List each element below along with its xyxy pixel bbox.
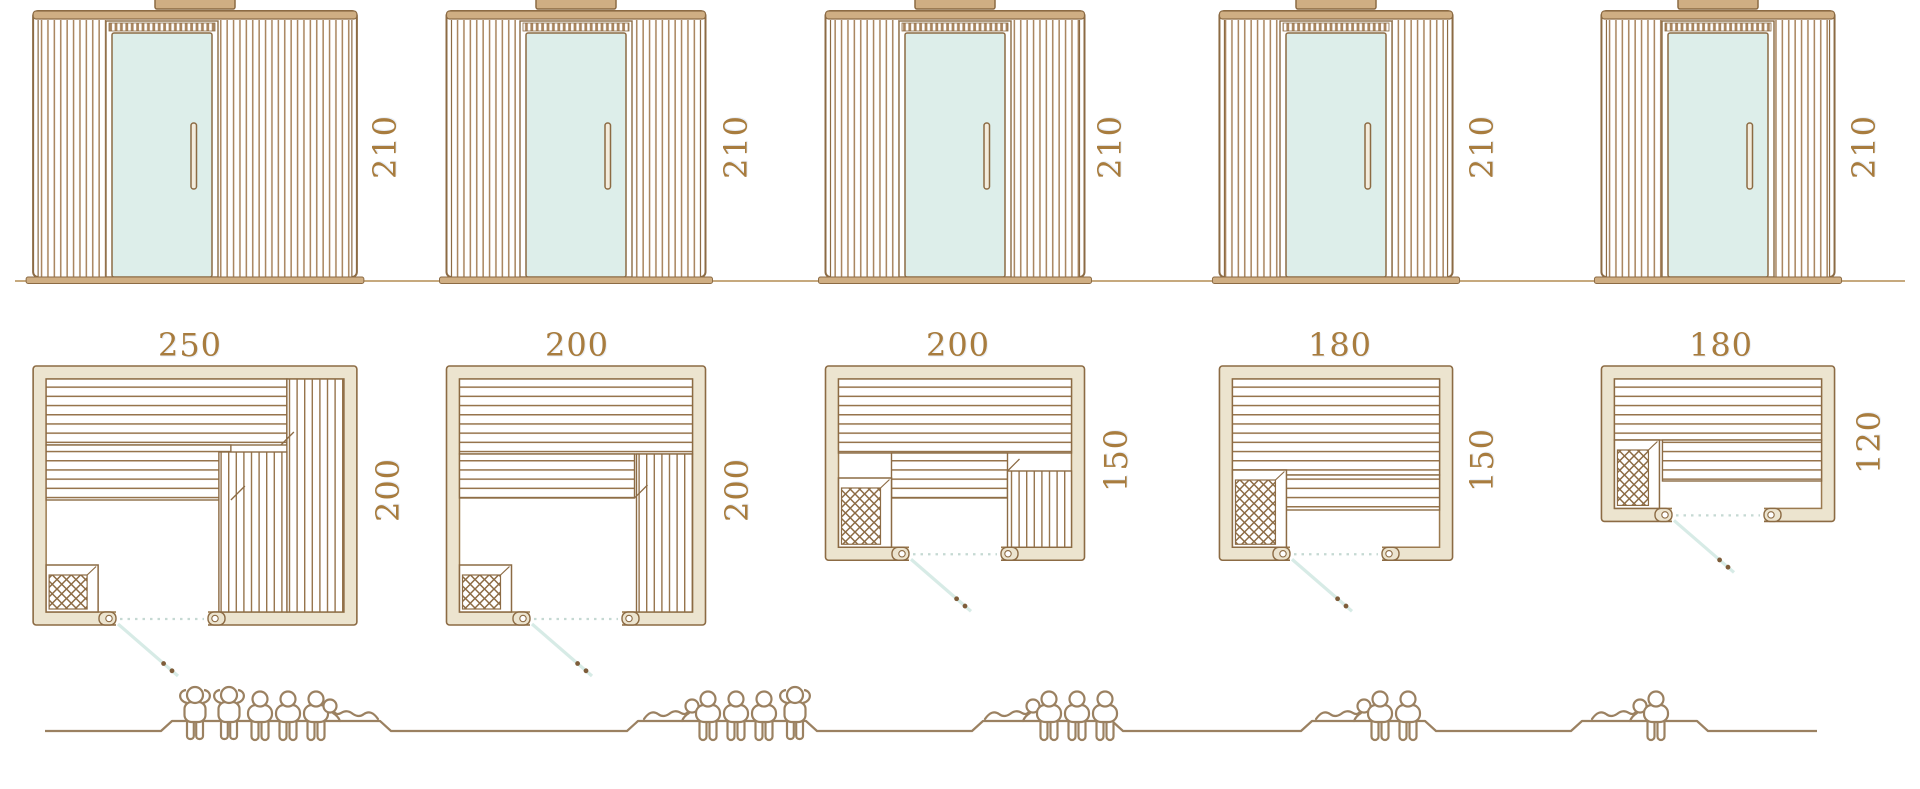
diagram-svg bbox=[0, 0, 1920, 789]
sitting-person-icon bbox=[752, 692, 776, 741]
bench-horizontal bbox=[460, 454, 635, 498]
sitting-person-icon bbox=[1368, 692, 1392, 741]
lying-person-icon bbox=[1592, 700, 1647, 722]
width-label-model-1: 250 bbox=[158, 326, 222, 364]
base-plinth bbox=[1594, 277, 1841, 284]
door-vent-grille bbox=[902, 23, 1008, 31]
height-label-model-5: 210 bbox=[1845, 115, 1883, 179]
sitting-person-icon bbox=[276, 692, 300, 741]
bench-vertical bbox=[1008, 471, 1072, 547]
floor-plan-model-200x150 bbox=[826, 366, 1085, 611]
height-label-model-4: 210 bbox=[1463, 115, 1501, 179]
height-label-model-1: 210 bbox=[366, 115, 404, 179]
sitting-person-icon bbox=[1037, 692, 1061, 741]
door-vent-grille bbox=[1665, 23, 1771, 31]
capacity-model-200x200 bbox=[644, 687, 810, 740]
base-plinth bbox=[440, 277, 713, 284]
bench-horizontal bbox=[1285, 475, 1439, 510]
floor-plan-model-200x200 bbox=[447, 366, 706, 676]
elevation-model-180x120 bbox=[1594, 0, 1841, 284]
heater bbox=[839, 478, 892, 547]
depth-label-model-3: 150 bbox=[1097, 428, 1135, 492]
door-handle bbox=[1365, 123, 1371, 189]
top-beam bbox=[447, 11, 706, 19]
door-handle bbox=[1747, 123, 1753, 189]
roof-vent bbox=[1678, 0, 1758, 9]
roof-vent bbox=[155, 0, 235, 9]
heater bbox=[1614, 440, 1659, 508]
sitting-person-icon bbox=[1644, 692, 1668, 741]
capacity-model-200x150 bbox=[985, 692, 1117, 741]
depth-label-model-1: 200 bbox=[369, 458, 407, 522]
elevation-model-200x150 bbox=[819, 0, 1092, 284]
sitting-person-icon bbox=[1396, 692, 1420, 741]
door-open-swing bbox=[1674, 520, 1734, 572]
width-label-model-5: 180 bbox=[1689, 326, 1753, 364]
depth-label-model-5: 120 bbox=[1850, 410, 1888, 474]
bench-vertical bbox=[637, 454, 693, 612]
base-plinth bbox=[26, 277, 364, 284]
capacity-model-180x120 bbox=[1592, 692, 1668, 741]
capacity-model-250x200 bbox=[180, 687, 378, 740]
lying-person-icon bbox=[324, 700, 379, 722]
lying-person-icon bbox=[1316, 700, 1371, 722]
top-beam bbox=[33, 11, 357, 19]
bench-vertical bbox=[287, 379, 344, 612]
floor-plan-model-250x200 bbox=[33, 366, 357, 676]
bench-horizontal bbox=[46, 445, 231, 500]
top-beam bbox=[1601, 11, 1834, 19]
width-label-model-4: 180 bbox=[1308, 326, 1372, 364]
bench-horizontal bbox=[1614, 379, 1821, 440]
door-open-swing bbox=[1292, 559, 1352, 611]
door-handle bbox=[191, 123, 197, 189]
roof-vent bbox=[1296, 0, 1376, 9]
floor-plan-model-180x150 bbox=[1219, 366, 1452, 611]
standing-person-icon bbox=[780, 687, 810, 739]
sitting-person-icon bbox=[696, 692, 720, 741]
standing-person-icon bbox=[180, 687, 210, 739]
bench-horizontal bbox=[1232, 379, 1439, 475]
floor-plan-model-180x120 bbox=[1601, 366, 1834, 572]
roof-vent bbox=[915, 0, 995, 9]
top-beam bbox=[826, 11, 1085, 19]
width-label-model-2: 200 bbox=[545, 326, 609, 364]
heater bbox=[1232, 470, 1286, 547]
standing-person-icon bbox=[214, 687, 244, 739]
height-label-model-3: 210 bbox=[1091, 115, 1129, 179]
heater bbox=[460, 565, 512, 612]
elevation-model-250x200 bbox=[26, 0, 364, 284]
bench-horizontal bbox=[1662, 440, 1821, 481]
door-open-swing bbox=[532, 624, 592, 676]
bench-horizontal bbox=[460, 379, 693, 454]
lying-person-icon bbox=[644, 700, 699, 722]
elevation-model-180x150 bbox=[1212, 0, 1459, 284]
bench-horizontal bbox=[46, 379, 287, 445]
heater bbox=[46, 565, 98, 612]
sitting-person-icon bbox=[248, 692, 272, 741]
sitting-person-icon bbox=[304, 692, 328, 741]
lying-person-icon bbox=[985, 700, 1040, 722]
door-vent-grille bbox=[1283, 23, 1389, 31]
base-plinth bbox=[1212, 277, 1459, 284]
elevation-model-200x200 bbox=[440, 0, 713, 284]
base-plinth bbox=[819, 277, 1092, 284]
roof-vent bbox=[536, 0, 616, 9]
depth-label-model-4: 150 bbox=[1463, 428, 1501, 492]
door-handle bbox=[984, 123, 990, 189]
bench-vertical bbox=[219, 452, 287, 612]
door-handle bbox=[605, 123, 611, 189]
door-vent-grille bbox=[109, 23, 215, 31]
door-open-swing bbox=[118, 624, 178, 676]
width-label-model-3: 200 bbox=[926, 326, 990, 364]
sitting-person-icon bbox=[1065, 692, 1089, 741]
sauna-size-diagram: 210 210 210 210 210 250 200 200 180 180 … bbox=[0, 0, 1920, 789]
sitting-person-icon bbox=[1093, 692, 1117, 741]
top-beam bbox=[1219, 11, 1452, 19]
height-label-model-2: 210 bbox=[717, 115, 755, 179]
sitting-person-icon bbox=[724, 692, 748, 741]
door-vent-grille bbox=[523, 23, 629, 31]
bench-horizontal bbox=[892, 453, 1008, 498]
depth-label-model-2: 200 bbox=[718, 458, 756, 522]
door-open-swing bbox=[911, 559, 971, 611]
capacity-model-180x150 bbox=[1316, 692, 1420, 741]
bench-horizontal bbox=[839, 379, 1072, 453]
